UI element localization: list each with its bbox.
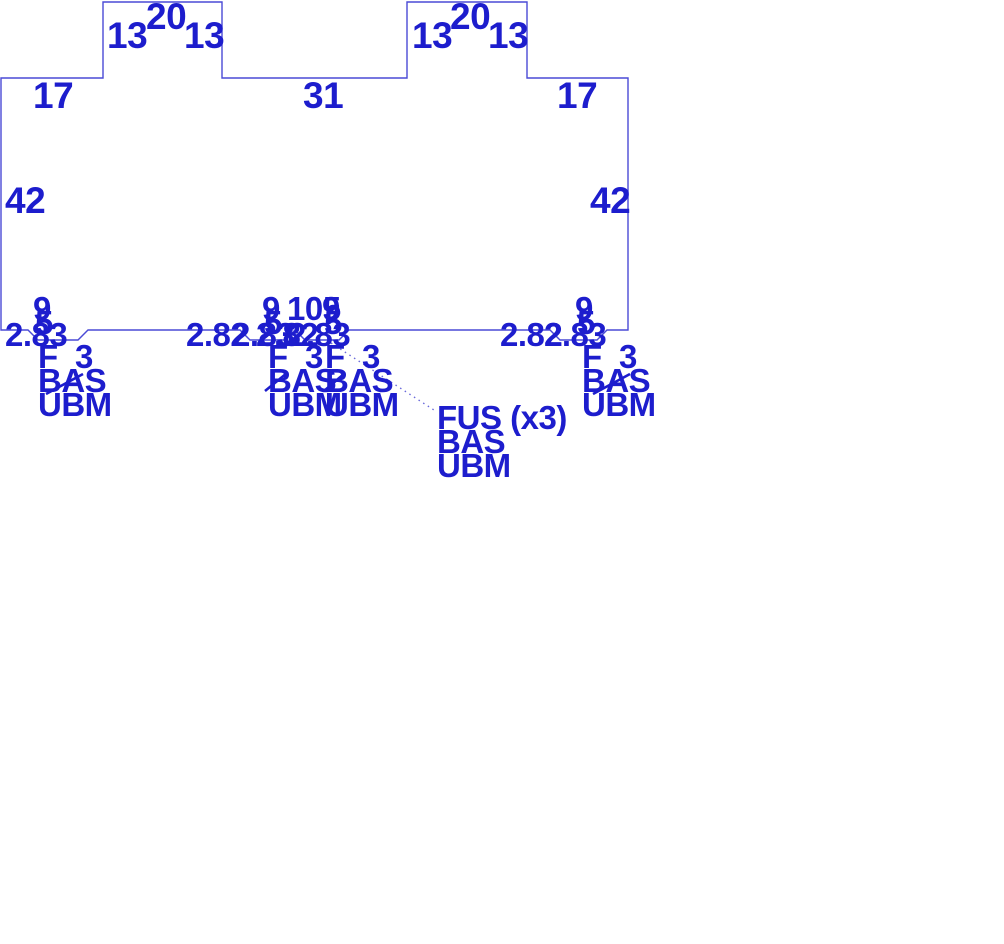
dimension-label: 20 (450, 0, 490, 35)
dimension-label: 42 (5, 182, 45, 219)
insert-label-line: UBM (582, 393, 656, 417)
dimension-label: 13 (184, 17, 224, 54)
dimension-label: 17 (33, 77, 73, 114)
insert-label-block: F 3BASUBM (325, 345, 399, 417)
insert-label-line: UBM (38, 393, 112, 417)
insert-label-block: F 3BASUBM (582, 345, 656, 417)
drawing-canvas[interactable]: 1320131320131731174242952.8391059552.822… (0, 0, 1004, 944)
callout-text-block: FUS (x3)BASUBM (437, 406, 567, 478)
callout-text-line: UBM (437, 454, 567, 478)
dimension-label: 20 (146, 0, 186, 35)
dimension-label: 31 (303, 77, 343, 114)
insert-label-line: UBM (325, 393, 399, 417)
dimension-label: 17 (557, 77, 597, 114)
dimension-label: 13 (488, 17, 528, 54)
dimension-label: 42 (590, 182, 630, 219)
dimension-label: 13 (107, 17, 147, 54)
dimension-label: 13 (412, 17, 452, 54)
insert-label-block: F 3BASUBM (38, 345, 112, 417)
